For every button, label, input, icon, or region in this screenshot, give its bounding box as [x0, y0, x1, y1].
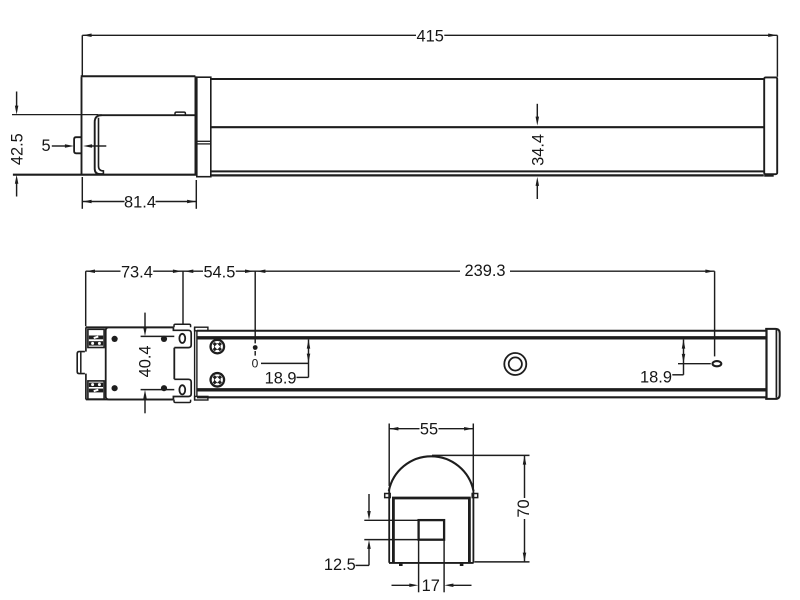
svg-text:239.3: 239.3	[464, 262, 505, 280]
svg-text:0: 0	[252, 357, 259, 371]
svg-text:415: 415	[417, 27, 444, 45]
svg-text:54.5: 54.5	[203, 263, 235, 281]
svg-text:40.4: 40.4	[136, 345, 154, 377]
svg-text:17: 17	[422, 577, 440, 595]
svg-text:70: 70	[515, 499, 533, 517]
svg-text:5: 5	[41, 137, 50, 155]
svg-text:42.5: 42.5	[9, 133, 27, 165]
svg-text:18.9: 18.9	[640, 369, 672, 387]
svg-text:73.4: 73.4	[121, 263, 153, 281]
svg-text:12.5: 12.5	[324, 556, 356, 574]
svg-text:55: 55	[420, 421, 438, 439]
svg-text:34.4: 34.4	[529, 134, 547, 166]
svg-text:18.9: 18.9	[265, 369, 297, 387]
svg-text:81.4: 81.4	[124, 193, 156, 211]
